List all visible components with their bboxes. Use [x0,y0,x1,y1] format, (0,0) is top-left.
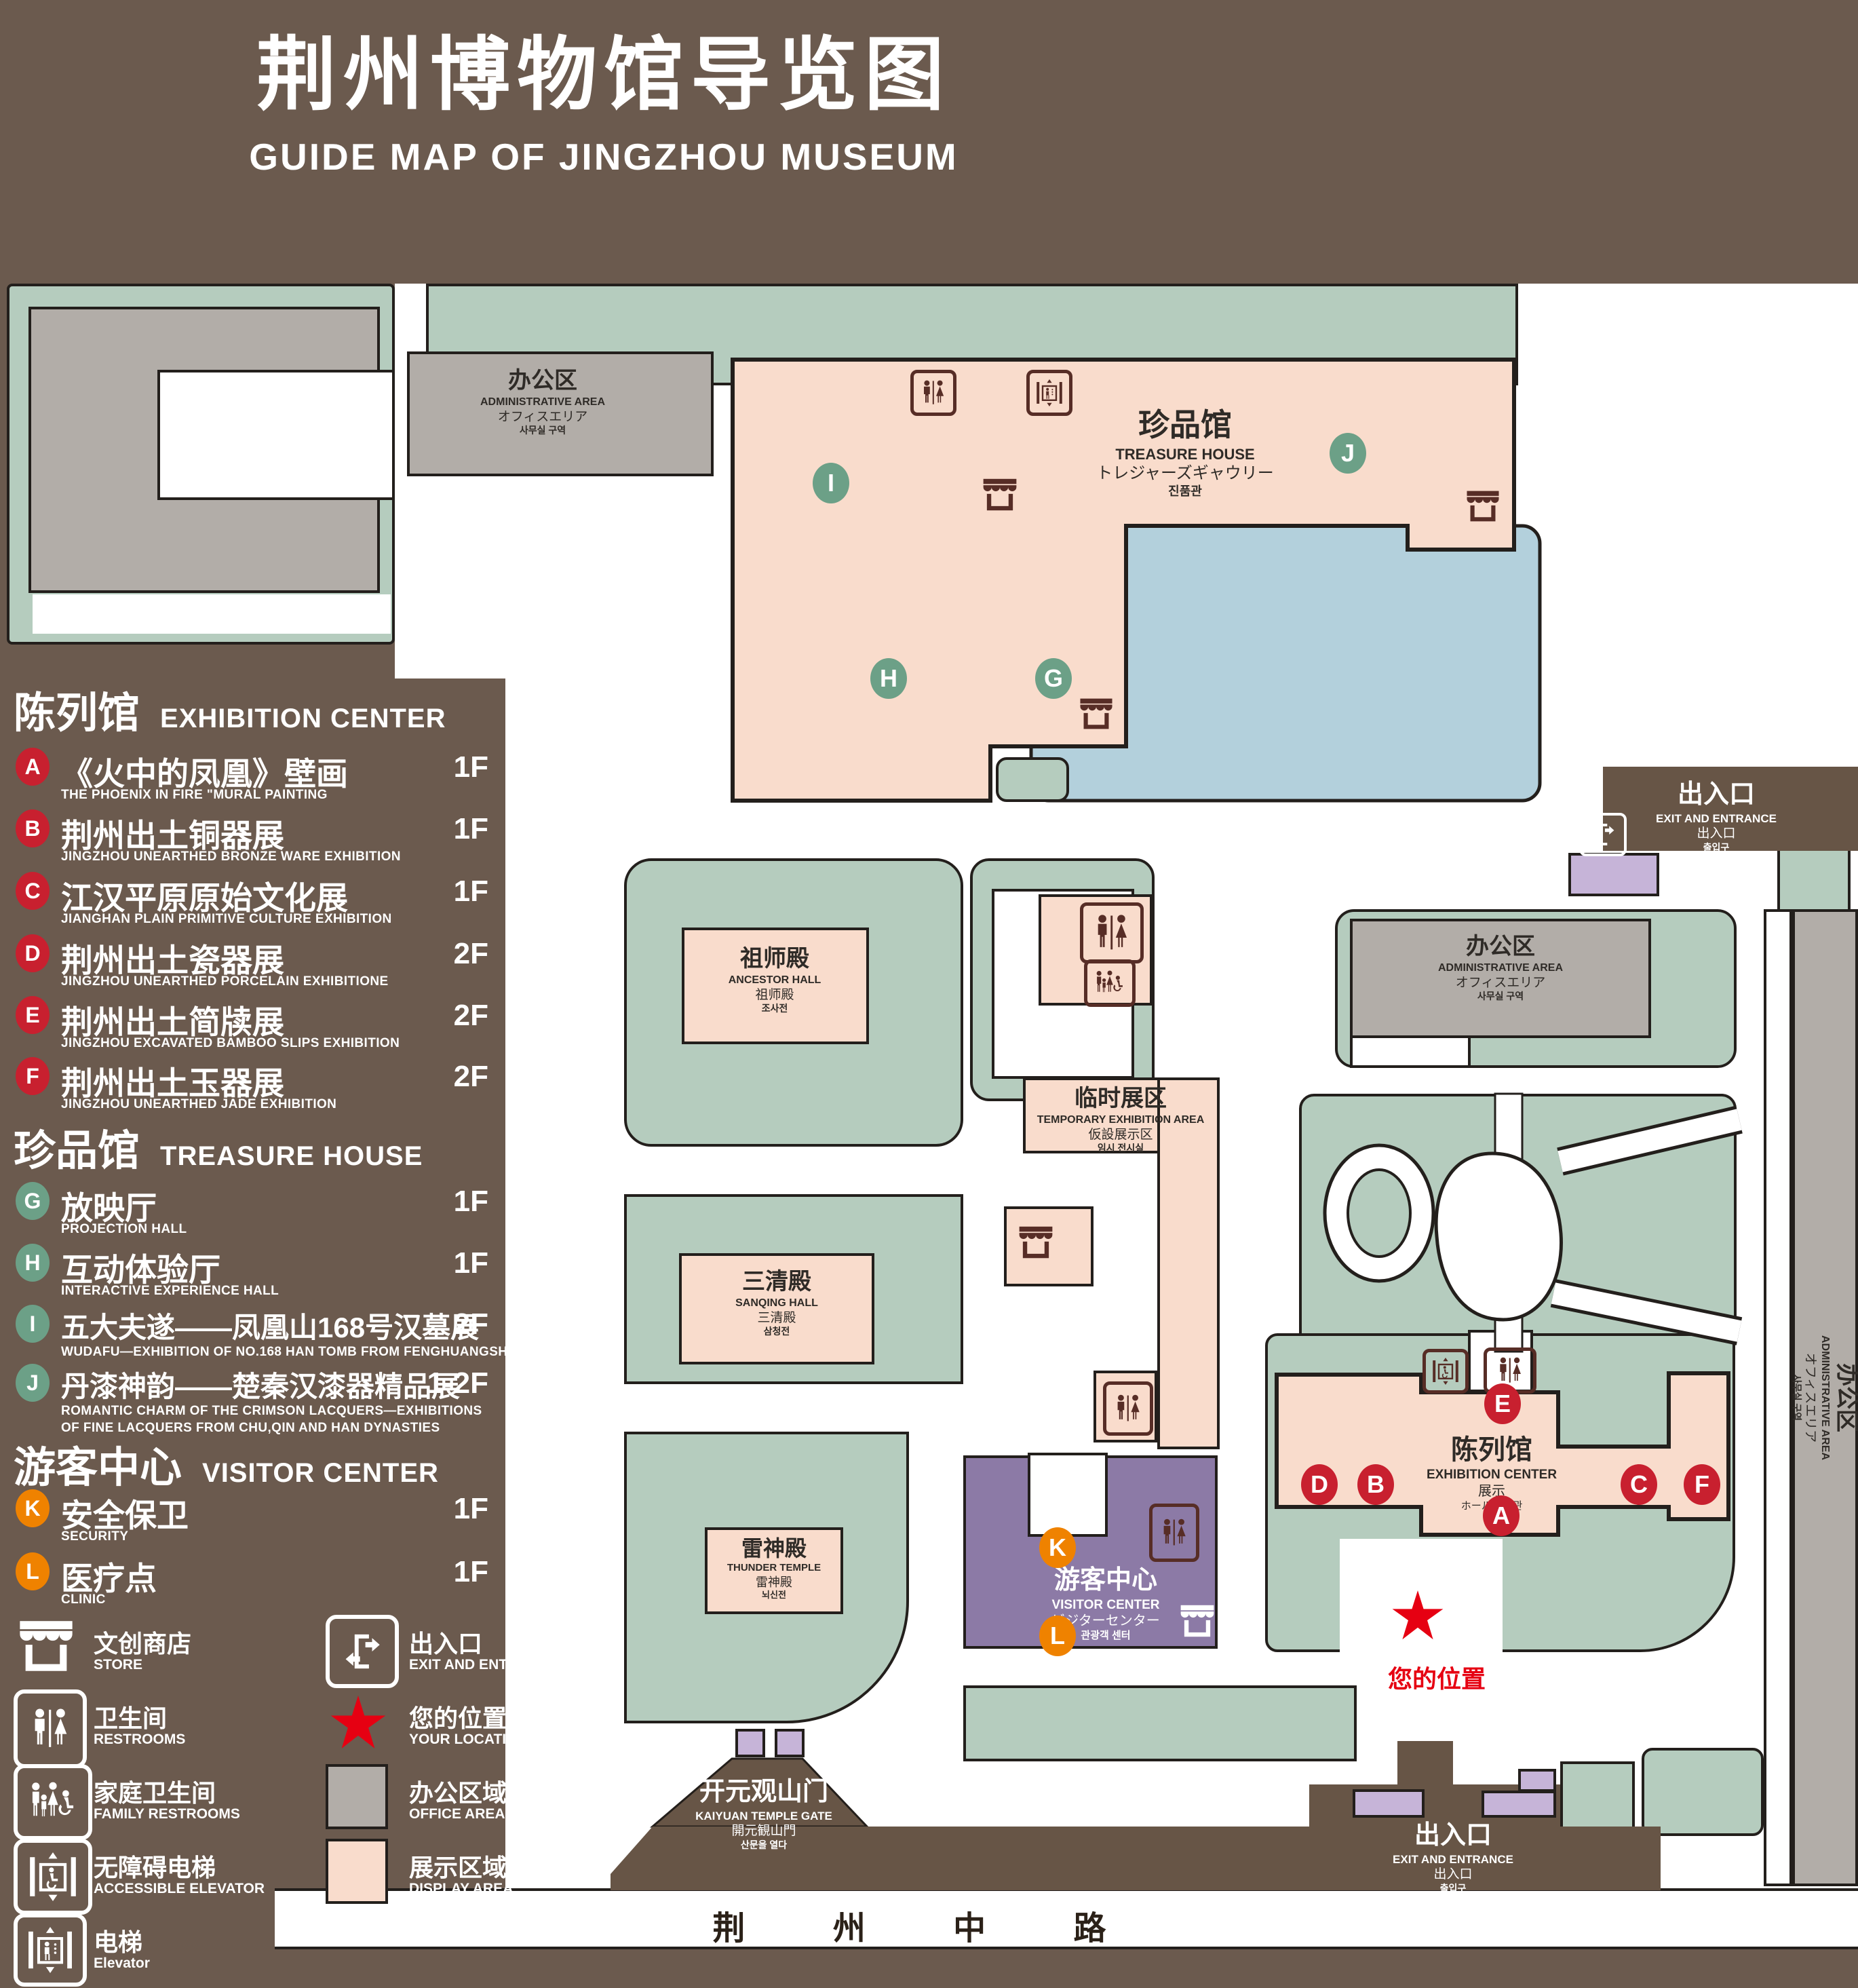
legend-item-C: C 江汉平原原始文化展 JIANGHAN PLAIN PRIMITIVE CUL… [14,872,488,934]
admin-mid-label: 办公区 ADMINISTRATIVE AREA オフィスエリア 사무실 구역 [1438,932,1563,1003]
map-marker-B: B [1357,1464,1394,1505]
legend-item-L: L 医疗点 CLINIC 1F [14,1552,488,1615]
legend-row-elevator: 电梯 Elevator [14,1913,611,1988]
legend-marker-A: A [16,748,50,786]
legend-marker-F: F [16,1057,50,1095]
legend-item-I: I 五大夫遂——凤凰山168号汉墓展 WUDAFU—EXHIBITION OF … [14,1305,488,1367]
legend-row-restroom-location: 卫生间 RESTROOMS 您的位置 YOUR LOCATION [14,1689,611,1764]
guide-map-poster: 荆州博物馆导览图 GUIDE MAP OF JINGZHOU MUSEUM [0,0,1858,1987]
exit-icon [326,1615,399,1688]
map-marker-A: A [1483,1495,1520,1536]
restroom-icon [910,370,956,416]
elevator-icon [14,1913,87,1987]
family-restroom-icon [1084,959,1136,1007]
gate-label: 开元观山门 KAIYUAN TEMPLE GATE 開元観山門 산문을 열다 [695,1776,832,1851]
gate-building-left [735,1729,765,1757]
restroom-icon [14,1689,87,1768]
legend-row-accessible-display: 无障碍电梯 ACCESSIBLE ELEVATOR 展示区域 DISPLAY A… [14,1839,611,1913]
legend-item-A: A 《火中的凤凰》壁画 THE PHOENIX IN FIRE "MURAL P… [14,748,488,810]
legend-section-visitor: 游客中心 VISITOR CENTER [14,1433,439,1494]
map-marker-H: H [870,658,907,699]
legend-item-K: K 安全保卫 SECURITY 1F [14,1489,488,1552]
legend-item-H: H 互动体验厅 INTERACTIVE EXPERIENCE HALL 1F [14,1244,488,1306]
legend-section-treasure: 珍品馆 TREASURE HOUSE [14,1116,423,1177]
map-marker-K: K [1039,1527,1076,1568]
legend-marker-J: J [16,1364,50,1402]
legend-marker-E: E [16,996,50,1034]
legend-item-J: J 丹漆神韵——楚秦汉漆器精品展 ROMANTIC CHARM OF THE C… [14,1364,488,1426]
gate-building-right [775,1729,805,1757]
legend-item-G: G 放映厅 PROJECTION HALL 1F [14,1182,488,1244]
entrance-building-bottom-left [1353,1789,1425,1818]
legend-item-B: B 荆州出土铜器展 JINGZHOU UNEARTHED BRONZE WARE… [14,809,488,872]
restroom-icon [1080,902,1144,963]
store-icon [980,474,1020,516]
garden-path-ne [1560,1120,1739,1162]
display-swatch [326,1839,388,1904]
map-marker-G: G [1035,658,1072,699]
legend-marker-L: L [16,1552,50,1590]
visitor-center-notch [1028,1453,1108,1537]
entrance-building-bottom-right [1482,1791,1556,1818]
legend-item-D: D 荆州出土瓷器展 JINGZHOU UNEARTHED PORCELAIN E… [14,934,488,997]
map-marker-I: I [813,463,849,503]
legend-marker-K: K [16,1489,50,1527]
your-location-text: 您的位置 [1388,1660,1486,1695]
admin-nw-label: 办公区 ADMINISTRATIVE AREA オフィスエリア 사무실 구역 [480,366,605,437]
sanqing-hall-label: 三清殿 SANQING HALL 三清殿 삼청전 [735,1267,818,1338]
entrance-building-bottom-right-step [1518,1769,1556,1792]
thunder-temple-label: 雷神殿 THUNDER TEMPLE 雷神殿 뇌신전 [727,1535,821,1601]
store-icon [1178,1593,1217,1649]
store-icon [1077,693,1115,734]
entrance-building-right [1568,853,1659,896]
office-swatch [326,1764,388,1829]
legend-marker-I: I [16,1305,50,1343]
map-marker-C: C [1621,1464,1657,1505]
exit-bottom-label: 出入口 EXIT AND ENTRANCE 出入口 출입구 [1393,1820,1513,1894]
legend-marker-B: B [16,809,50,847]
exit-icon [1579,813,1627,856]
ancestor-hall-label: 祖师殿 ANCESTOR HALL 祖师殿 조사전 [729,944,821,1015]
legend-marker-D: D [16,934,50,972]
restroom-icon [1149,1504,1199,1562]
garden-path-n [1495,1094,1522,1162]
garden-pond-path [1436,1153,1561,1320]
legend-section-exhibition: 陈列馆 EXHIBITION CENTER [14,678,446,740]
accessible-elevator-icon [1422,1349,1469,1394]
admin-right-label: 办公区 ADMINISTRATIVE AREA オフィスエリア 사무실 구역 [1790,1335,1858,1460]
restroom-icon [1103,1381,1153,1436]
legend-row-store-exit: 文创商店 STORE 出入口 EXIT AND ENTRANCE [14,1615,611,1689]
store-icon [1016,1221,1056,1263]
map-marker-L: L [1039,1616,1076,1656]
temporary-area-label: 临时展区 TEMPORARY EXHIBITION AREA 仮設展示区 임시 … [1037,1084,1205,1155]
legend-marker-G: G [16,1182,50,1220]
store-icon [1464,486,1502,527]
store-icon [14,1615,79,1677]
map-marker-J: J [1330,433,1366,474]
location-star-icon [330,1696,387,1751]
accessible-elevator-icon [14,1839,92,1915]
garden-ring-inner [1348,1170,1410,1257]
elevator-icon [1026,370,1072,416]
legend-marker-C: C [16,872,50,910]
legend-marker-H: H [16,1244,50,1282]
pond-island [997,759,1068,801]
map-marker-E: E [1484,1383,1521,1424]
map-marker-D: D [1301,1464,1338,1505]
map-marker-F: F [1684,1464,1720,1505]
family-restroom-icon [14,1764,92,1840]
legend-item-E: E 荆州出土简牍展 JINGZHOU EXCAVATED BAMBOO SLIP… [14,996,488,1058]
legend-item-F: F 荆州出土玉器展 JINGZHOU UNEARTHED JADE EXHIBI… [14,1057,488,1120]
treasure-house-label: 珍品馆 TREASURE HOUSE トレジャーズギャウリー 진품관 [1096,406,1274,499]
exit-right-label: 出入口 EXIT AND ENTRANCE 出入口 출입구 [1656,779,1777,854]
legend-row-family-office: 家庭卫生间 FAMILY RESTROOMS 办公区域 OFFICE AREA [14,1764,611,1839]
admin-right-label-wrap: 办公区 ADMINISTRATIVE AREA オフィスエリア 사무실 구역 [1792,909,1858,1886]
